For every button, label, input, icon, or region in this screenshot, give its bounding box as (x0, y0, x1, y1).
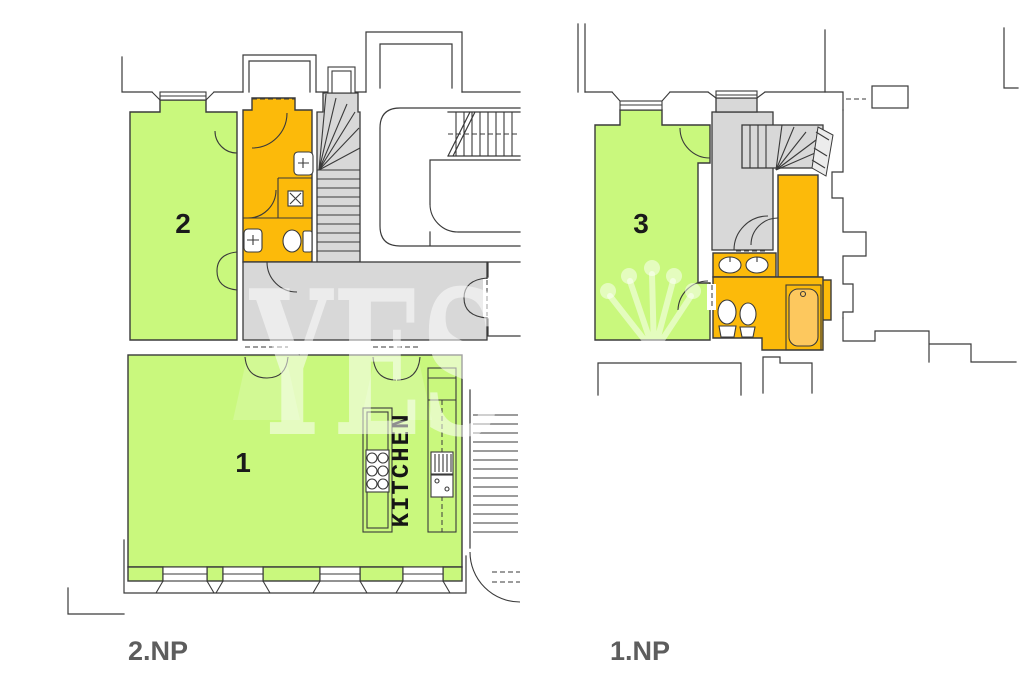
top-right-walls (825, 28, 1018, 110)
pier (443, 567, 462, 581)
right-plan-1np: 3 (578, 24, 1018, 666)
top-wall (122, 57, 520, 92)
left-plan-2np: 2 (68, 32, 520, 666)
bathroom-2np (243, 98, 313, 262)
floor-label-2np: 2.NP (128, 636, 188, 666)
bottom-windows (128, 567, 462, 593)
bathtub (786, 285, 821, 350)
toilet-tank (719, 326, 736, 337)
pier (128, 567, 163, 581)
pier (360, 567, 403, 581)
toilet (718, 300, 736, 337)
window (152, 92, 214, 100)
window (216, 567, 270, 593)
floor-plan-page: 2 (0, 0, 1024, 683)
neighbour-stair-top-right (448, 112, 520, 156)
right-niche (872, 86, 908, 108)
toilet-bowl (740, 303, 756, 325)
pier (263, 567, 320, 581)
bottom-left-box (598, 363, 741, 395)
tub-inner (789, 289, 818, 346)
crown-dot (621, 268, 637, 284)
window-bay (716, 98, 757, 112)
staircase-2np (317, 67, 360, 262)
wc-room (778, 175, 818, 277)
window (313, 567, 367, 593)
pier (207, 567, 223, 581)
watermark-text: YES (249, 247, 505, 482)
room-2-number: 2 (175, 208, 191, 239)
crown-dot (666, 268, 682, 284)
chimney-inner (332, 71, 351, 93)
window (708, 91, 765, 98)
threshold-dash (492, 572, 520, 582)
toilet-tank (740, 327, 755, 337)
crown-dot (685, 283, 701, 299)
corridor-1np (708, 91, 773, 251)
neighbour-door-arc (430, 204, 458, 232)
crown-dot (644, 260, 660, 276)
bottom-right-steps (843, 318, 1016, 362)
floor-label-1np: 1.NP (610, 636, 670, 666)
room-3: 3 (595, 92, 710, 352)
neighbour-round-room (380, 108, 520, 246)
toilet (740, 303, 756, 337)
crown-dot (600, 283, 616, 299)
floor-plan-canvas: 2 (0, 0, 1024, 683)
left-double-wall (578, 24, 585, 92)
staircase-1np (742, 125, 833, 176)
window (396, 567, 450, 593)
window (612, 92, 670, 110)
room-2: 2 (130, 92, 237, 340)
window-bay-top (243, 55, 316, 92)
top-right-block (366, 32, 462, 92)
toilet-bowl (718, 300, 736, 324)
room-3-number: 3 (633, 208, 649, 239)
right-jagged-wall (832, 110, 866, 318)
entry-door-arc (470, 552, 520, 602)
bottom-middle-step (763, 357, 812, 393)
window (156, 567, 214, 593)
room-1-number: 1 (235, 447, 251, 478)
